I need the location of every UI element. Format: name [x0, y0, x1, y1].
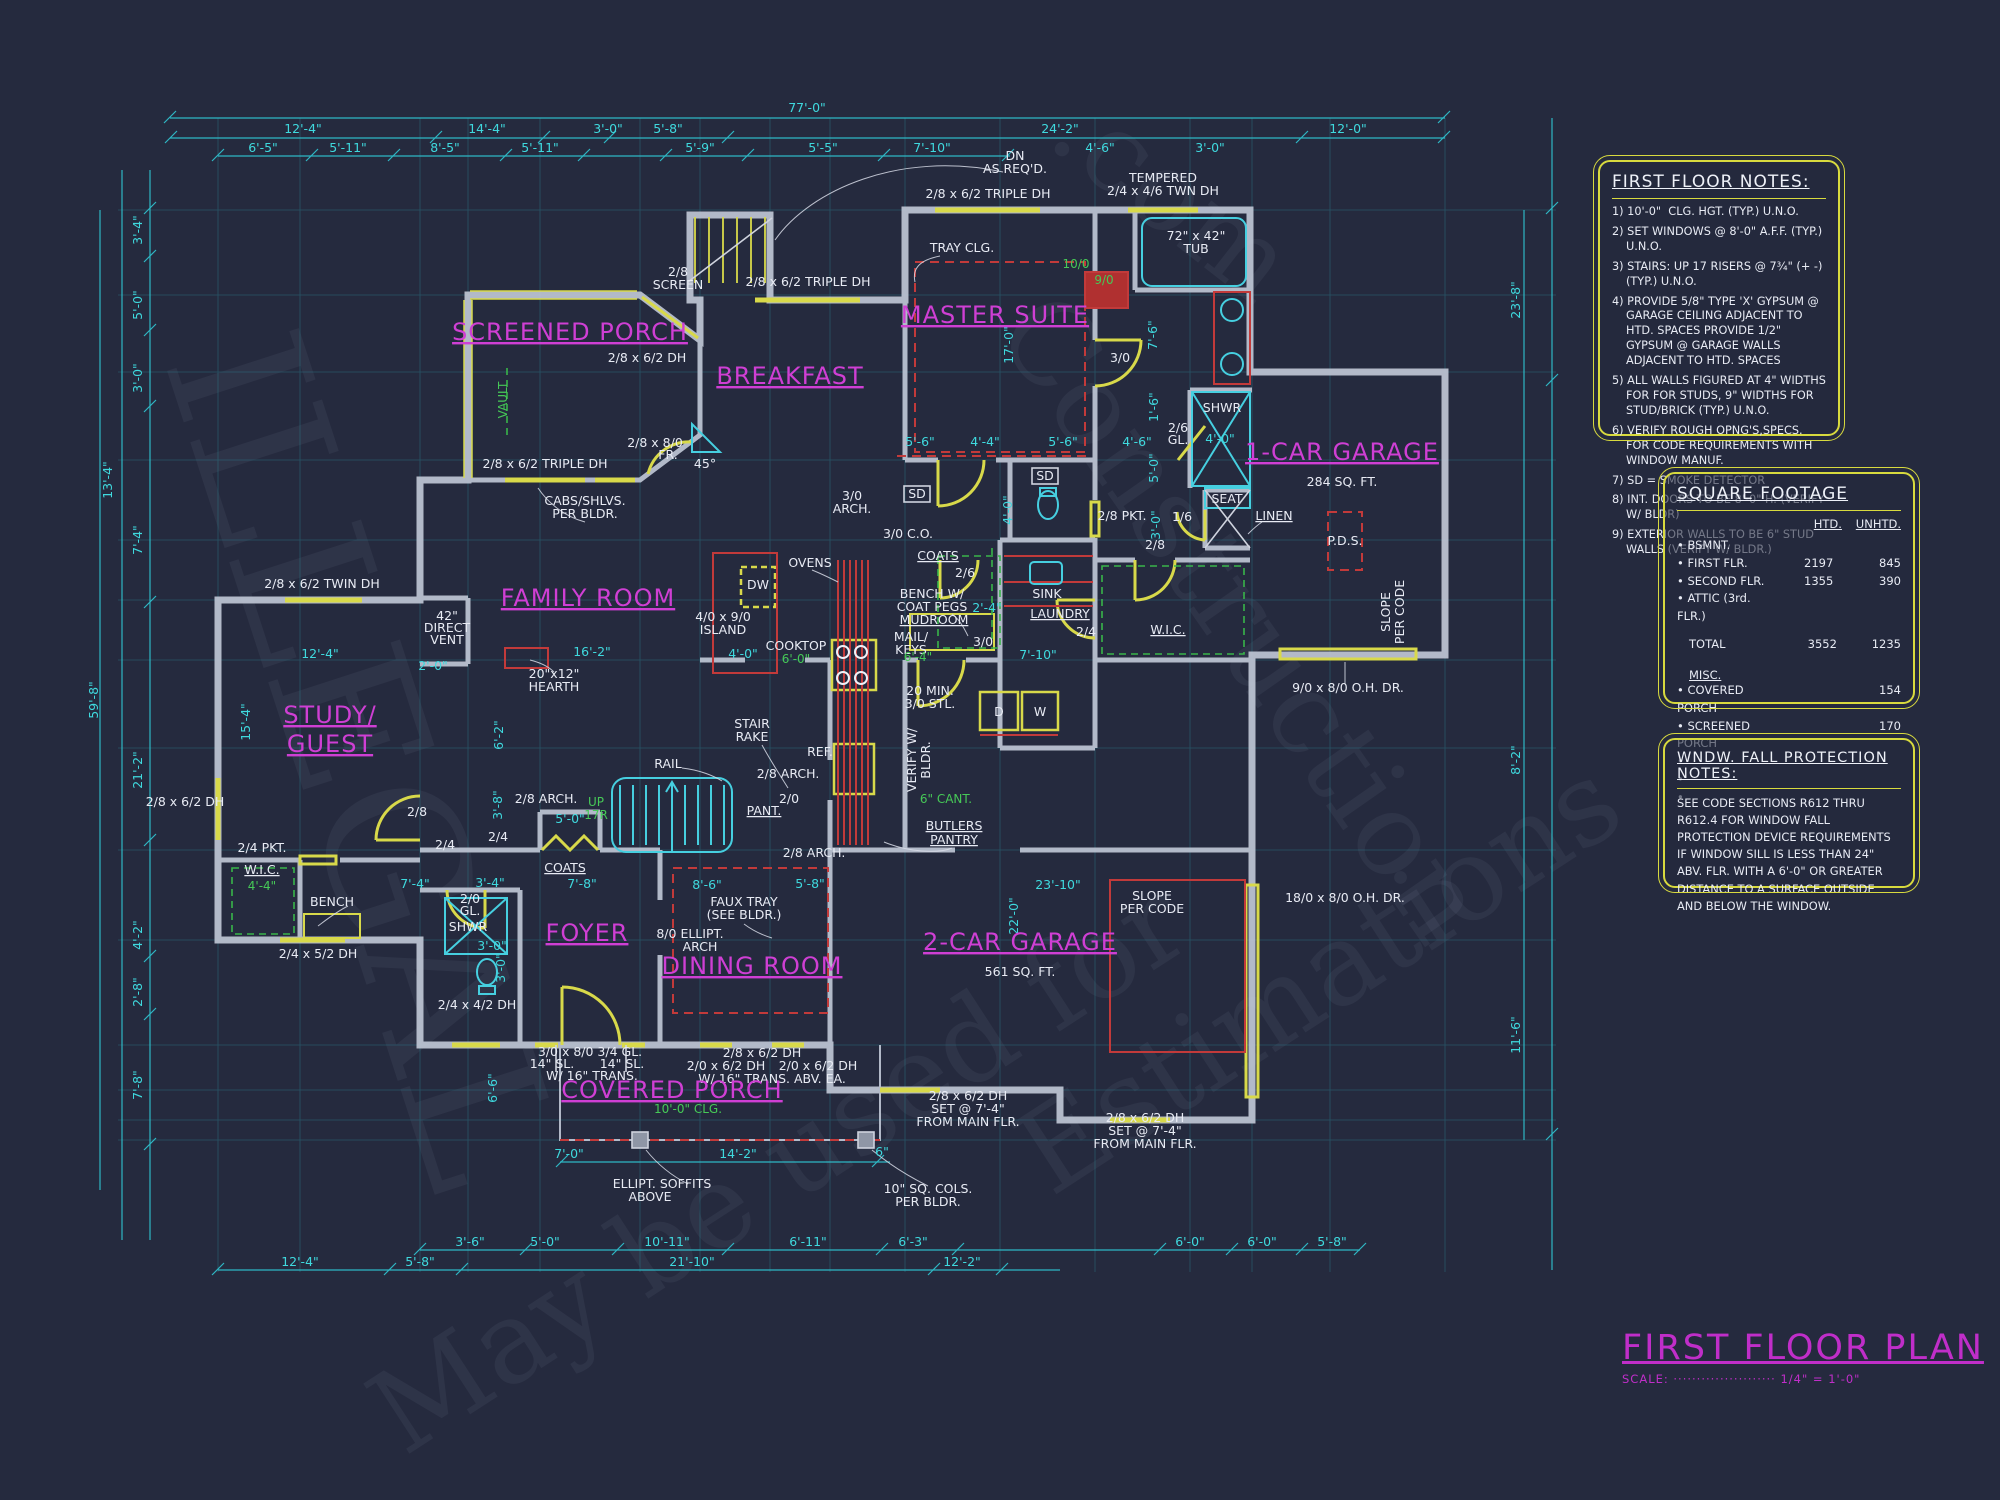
first-floor-notes-panel: FIRST FLOOR NOTES: 1) 10'-0" CLG. HGT. (… [1598, 160, 1840, 436]
sqft-row-unhtd [1833, 590, 1901, 626]
fall-protection-panel: WNDW. FALL PROTECTION NOTES: SEE CODE SE… [1663, 738, 1915, 888]
dim-label: 8'-2" [1508, 745, 1523, 775]
sqft-row-unhtd: 390 [1833, 573, 1901, 591]
sqft-misc-row: • COVERED PORCH154 [1677, 682, 1901, 718]
dim-label: 3'-0" [477, 938, 507, 953]
annotation-label: AS REQ'D. [983, 161, 1047, 176]
annotation-label: LAUNDRY [1030, 606, 1090, 621]
annotation-label: COOKTOP [766, 638, 827, 653]
dim-label: 6'-11" [789, 1234, 827, 1249]
dim-label: 5'-0" [530, 1234, 560, 1249]
dim-label: 3'-0" [1195, 140, 1225, 155]
room-label: 2-CAR GARAGE [923, 928, 1117, 956]
laundry-sink [1030, 562, 1062, 584]
dim-label: 7'-10" [1019, 647, 1057, 662]
sqft-row-label: • SECOND FLR. [1677, 573, 1779, 591]
annotation-label: D [994, 704, 1004, 719]
dim-label: 5'-8" [405, 1254, 435, 1269]
dim-label: 4'-0" [1000, 495, 1015, 525]
annotation-label: COATS [917, 548, 959, 563]
sqft-row: • ATTIC (3rd. FLR.) [1677, 590, 1901, 626]
dim-label: 3'-6" [455, 1234, 485, 1249]
floorplan-screenshot: ILLEGALMay be used forEstimationsConstru… [0, 0, 2000, 1500]
dim-label: 5'-9" [685, 140, 715, 155]
dim-label: 5'-0" [1146, 453, 1161, 483]
hearth [505, 648, 548, 668]
annotation-label: RAKE [736, 729, 769, 744]
annotation-label: 2/4 x 4/6 TWN DH [1107, 183, 1219, 198]
dim-label: 15'-4" [238, 703, 253, 741]
green-label: 10/0 [1063, 257, 1090, 271]
cabinet-strip [838, 560, 868, 845]
dim-label: 3'-0" [493, 953, 508, 983]
dim-label: 5'-11" [521, 140, 559, 155]
dim-label: 14'-2" [719, 1146, 757, 1161]
annotation-label: 2/4 x 4/2 DH [438, 997, 517, 1012]
annotation-label: 45° [694, 456, 716, 471]
green-label: UP [588, 795, 604, 809]
annotation-label: (SEE BLDR.) [707, 907, 782, 922]
annotation-label: SHWR [1203, 400, 1242, 415]
annotation-label: 2/6 [955, 565, 975, 580]
dim-label: 5'-8" [653, 121, 683, 136]
room-label: COVERED PORCH [561, 1076, 782, 1104]
annotation-label: 2/4 [488, 829, 508, 844]
green-label: 6'-0" [782, 652, 810, 666]
dim-label: 8'-5" [430, 140, 460, 155]
annotation-label: COATS [544, 860, 586, 875]
dim-label: 6'-6" [485, 1073, 500, 1103]
annotation-label: MUDROOM [900, 612, 969, 627]
room-label: FAMILY ROOM [501, 584, 675, 612]
green-label: 6'-4" [904, 650, 932, 664]
annotation-label: 1/6 [1172, 509, 1192, 524]
room-label: STUDY/ [283, 701, 376, 729]
annotation-label: BUTLERS [926, 818, 983, 833]
sqft-row-htd [1779, 537, 1833, 555]
annotation-label: SEAT [1211, 491, 1242, 506]
sqft-misc-label: MISC. [1677, 668, 1901, 682]
dim-label: 5'-5" [808, 140, 838, 155]
sqft-row: • BSMNT. [1677, 537, 1901, 555]
dim-label: 7'-4" [130, 525, 145, 555]
sqft-row-label: • FIRST FLR. [1677, 555, 1779, 573]
dim-label: 7'-8" [130, 1070, 145, 1100]
annotation-label: 2/8 x 6/2 TWIN DH [264, 576, 380, 591]
annotation-label: SCREEN [653, 277, 704, 292]
annotation-label: SHWR [449, 919, 488, 934]
dim-label: 4'-0" [1205, 431, 1235, 446]
page-title: FIRST FLOOR PLAN [1622, 1328, 1984, 1368]
dim-label: 3'-4" [130, 215, 145, 245]
room-label: DINING ROOM [662, 952, 843, 980]
sqft-row-htd [1779, 590, 1833, 626]
toilet-bath [1038, 488, 1058, 519]
annotation-label: 2/8 x 6/2 TRIPLE DH [483, 456, 608, 471]
sqft-row-unhtd: 845 [1833, 555, 1901, 573]
sqft-row-htd: 2197 [1779, 555, 1833, 573]
annotation-label: FROM MAIN FLR. [916, 1114, 1019, 1129]
main-stairs [612, 778, 732, 852]
annotation-label: 2/8 ARCH. [515, 791, 578, 806]
annotation-label: 2/8 x 6/2 DH [608, 350, 687, 365]
annotation-label: SD [1036, 468, 1054, 483]
note-item: 4) PROVIDE 5/8" TYPE 'X' GYPSUM @ GARAGE… [1612, 295, 1826, 370]
annotation-label: LINEN [1255, 508, 1292, 523]
annotation-label: P.D.S. [1327, 533, 1362, 548]
annotation-label: SD [908, 486, 926, 501]
annotation-label: DW [747, 577, 769, 592]
dim-label: 21'-2" [130, 751, 145, 789]
dim-label: 12'-0" [1329, 121, 1367, 136]
dim-label: 5'-8" [795, 876, 825, 891]
green-label: 4'-4" [248, 879, 276, 893]
room-label: GUEST [287, 730, 373, 758]
annotation-label: W.I.C. [244, 862, 279, 877]
dim-label: 6'-3" [898, 1234, 928, 1249]
annotation-label: TUB [1182, 241, 1208, 256]
sqft-total-label: TOTAL [1677, 636, 1786, 654]
dim-label: 8'-6" [692, 877, 722, 892]
dim-label: 6'-2" [491, 720, 506, 750]
annotation-label: 2/8 x 6/2 DH [146, 794, 225, 809]
annotation-label: PER BLDR. [552, 506, 617, 521]
annotation-label: VENT [430, 632, 464, 647]
annotation-label: TRAY CLG. [929, 240, 994, 255]
annotation-label: 2/8 [1145, 537, 1165, 552]
annotation-label: ABOVE [629, 1189, 672, 1204]
annotation-label: 2/8 ARCH. [783, 845, 846, 860]
annotation-label: FROM MAIN FLR. [1093, 1136, 1196, 1151]
dim-label: 12'-4" [301, 646, 339, 661]
dim-label: 2'-0" [418, 658, 448, 673]
fall-notes-body: SEE CODE SECTIONS R612 THRU R612.4 FOR W… [1677, 795, 1901, 915]
dim-label: 10'-11" [644, 1234, 690, 1249]
watermark-text: ILLEGAL [121, 307, 604, 1213]
annotation-label: BLDR. [918, 741, 933, 778]
annotation-label: 3/0 C.O. [883, 526, 933, 541]
watermark-layer: ILLEGALMay be used forEstimationsConstru… [121, 62, 1644, 1480]
dim-label: 14'-4" [468, 121, 506, 136]
annotation-label: 2/8 x 6/2 TRIPLE DH [926, 186, 1051, 201]
sqft-row-htd: 1355 [1779, 573, 1833, 591]
annotation-label: HEARTH [529, 679, 580, 694]
annotation-label: SINK [1032, 586, 1062, 601]
dim-label: 5'-8" [1317, 1234, 1347, 1249]
annotation-label: GL. [460, 903, 481, 918]
annotation-label: PANTRY [930, 832, 978, 847]
dim-label: 3'-8" [490, 790, 505, 820]
annotation-label: PER CODE [1120, 901, 1184, 916]
green-label: 10'-0" CLG. [654, 1102, 722, 1116]
dim-label: 59'-8" [86, 681, 101, 719]
room-label: SCREENED PORCH [452, 318, 688, 346]
sqft-row-label: • ATTIC (3rd. FLR.) [1677, 590, 1779, 626]
sqft-rows: • BSMNT.• FIRST FLR.2197845• SECOND FLR.… [1677, 537, 1901, 626]
dim-label: 7'-4" [400, 876, 430, 891]
dim-label: 4'-6" [1122, 434, 1152, 449]
dim-label: 6'-0" [1175, 1234, 1205, 1249]
dim-label: 24'-2" [1041, 121, 1079, 136]
dim-label: 77'-0" [788, 100, 826, 115]
note-item: 5) ALL WALLS FIGURED AT 4" WIDTHS FOR FO… [1612, 374, 1826, 419]
dim-label: 5'-0" [130, 290, 145, 320]
dim-label: 7'-0" [554, 1146, 584, 1161]
dim-label: 7'-8" [567, 876, 597, 891]
dim-label: 12'-4" [281, 1254, 319, 1269]
title-block: FIRST FLOOR PLAN SCALE: ················… [1622, 1328, 1984, 1386]
sqft-total-row: TOTAL 3552 1235 [1677, 636, 1901, 654]
sqft-misc-row-htd [1779, 682, 1833, 718]
note-item: 3) STAIRS: UP 17 RISERS @ 7¾" (+ -) (TYP… [1612, 260, 1826, 290]
green-label: 17R [584, 808, 608, 822]
annotation-label: 2/8 ARCH. [757, 766, 820, 781]
notes-title: FIRST FLOOR NOTES: [1612, 172, 1826, 199]
dim-label: 12'-4" [284, 121, 322, 136]
annotation-label: PER CODE [1392, 580, 1407, 644]
annotation-label: ARCH. [833, 501, 872, 516]
dim-label: 3'-4" [475, 875, 505, 890]
dim-label: 17'-0" [1001, 326, 1016, 364]
green-label: VAULT [496, 381, 510, 418]
dim-label: 23'-10" [1035, 877, 1081, 892]
annotation-label: 561 SQ. FT. [985, 964, 1056, 979]
dim-label: 6'-5" [248, 140, 278, 155]
square-footage-panel: SQUARE FOOTAGE HTD. UNHTD. • BSMNT.• FIR… [1663, 472, 1915, 704]
note-item: 2) SET WINDOWS @ 8'-0" A.F.F. (TYP.) U.N… [1612, 225, 1826, 255]
dim-label: 5'-11" [329, 140, 367, 155]
sqft-row-label: • BSMNT. [1677, 537, 1779, 555]
dim-label: 2'-8" [130, 977, 145, 1007]
green-label: 9/0 [1094, 273, 1113, 287]
sqft-title: SQUARE FOOTAGE [1677, 484, 1901, 511]
annotation-label: 3/0 [973, 634, 993, 649]
dim-label: 6'-0" [1247, 1234, 1277, 1249]
sqft-row-unhtd [1833, 537, 1901, 555]
dim-label: 1'-6" [1146, 392, 1161, 422]
room-label: 1-CAR GARAGE [1245, 438, 1439, 466]
sqft-misc-row-unhtd: 154 [1833, 682, 1901, 718]
annotation-label: W.I.C. [1150, 622, 1185, 637]
dim-label: 21'-10" [669, 1254, 715, 1269]
annotation-label: 2/0 [779, 791, 799, 806]
room-label: MASTER SUITE [901, 301, 1089, 329]
annotation-label: 2/4 [1076, 624, 1096, 639]
sqft-row: • SECOND FLR.1355390 [1677, 573, 1901, 591]
sqft-misc-row-label: • COVERED PORCH [1677, 682, 1779, 718]
sqft-headers: HTD. UNHTD. [1677, 517, 1901, 531]
room-label: BREAKFAST [716, 362, 863, 390]
annotation-label: RAIL [654, 756, 681, 771]
annotation-label: BENCH [310, 894, 354, 909]
dim-label: 4'-6" [1085, 140, 1115, 155]
scale-label: SCALE: ······················ 1/4" = 1'-… [1622, 1372, 1984, 1386]
annotation-label: 2/4 PKT. [238, 840, 287, 855]
fall-notes-title: WNDW. FALL PROTECTION NOTES: [1677, 750, 1901, 789]
dim-label: 11'-6" [1508, 1016, 1523, 1054]
room-label: FOYER [546, 919, 629, 947]
annotation-label: ISLAND [700, 622, 746, 637]
dim-label: 13'-4" [100, 461, 115, 499]
annotation-label: W [1034, 704, 1046, 719]
dim-label: 7'-6" [1145, 320, 1160, 350]
annotation-label: SLOPE [1378, 592, 1393, 632]
dim-label: 4'-4" [970, 434, 1000, 449]
annotation-label: 284 SQ. FT. [1307, 474, 1378, 489]
dim-label: 23'-8" [1508, 281, 1523, 319]
annotation-label: 2/4 [435, 837, 455, 852]
note-item: 6) VERIFY ROUGH OPNG'S,SPECS. FOR CODE R… [1612, 424, 1826, 469]
dim-label: 12'-2" [943, 1254, 981, 1269]
sqft-header-unhtd: UNHTD. [1842, 517, 1901, 531]
note-item: 1) 10'-0" CLG. HGT. (TYP.) U.N.O. [1612, 205, 1826, 220]
dim-label: 5'-6" [1048, 434, 1078, 449]
dim-label: 6" [875, 1144, 889, 1159]
sqft-header-htd: HTD. [1795, 517, 1842, 531]
annotation-label: GL. [1168, 432, 1189, 447]
annotation-label: PER BLDR. [895, 1194, 960, 1209]
dim-label: 3'-0" [593, 121, 623, 136]
dim-label: 3'-0" [1148, 510, 1163, 540]
annotation-label: 3/0 [1110, 350, 1130, 365]
green-label: 6" CANT. [920, 792, 972, 806]
annotation-label: 9/0 x 8/0 O.H. DR. [1292, 680, 1404, 695]
porch-post-2 [858, 1132, 874, 1148]
annotation-label: VERIFY W/ [904, 727, 919, 792]
sqft-total-unhtd: 1235 [1837, 636, 1901, 654]
dim-label: 4'-2" [130, 920, 145, 950]
sqft-total-htd: 3552 [1786, 636, 1837, 654]
annotation-label: REF. [807, 744, 833, 759]
dim-label: 2'-4" [972, 600, 1002, 615]
dim-label: 7'-10" [913, 140, 951, 155]
annotation-label: 2/8 PKT. [1098, 508, 1147, 523]
annotation-label: 18/0 x 8/0 O.H. DR. [1285, 890, 1405, 905]
annotation-label: PANT. [747, 803, 782, 818]
sqft-row: • FIRST FLR.2197845 [1677, 555, 1901, 573]
dim-label: 4'-0" [728, 646, 758, 661]
annotation-label: OVENS [788, 555, 831, 570]
annotation-label: 2/8 [407, 804, 427, 819]
annotation-label: 3/0 STL. [905, 696, 956, 711]
annotation-label: 2/8 x 6/2 TRIPLE DH [746, 274, 871, 289]
dim-label: 3'-0" [130, 363, 145, 393]
annotation-label: FR. [658, 447, 677, 462]
dim-label: 5'-6" [905, 434, 935, 449]
dim-label: 16'-2" [573, 644, 611, 659]
dim-label: 5'-0" [555, 811, 585, 826]
porch-post-1 [632, 1132, 648, 1148]
annotation-label: 2/4 x 5/2 DH [279, 946, 358, 961]
